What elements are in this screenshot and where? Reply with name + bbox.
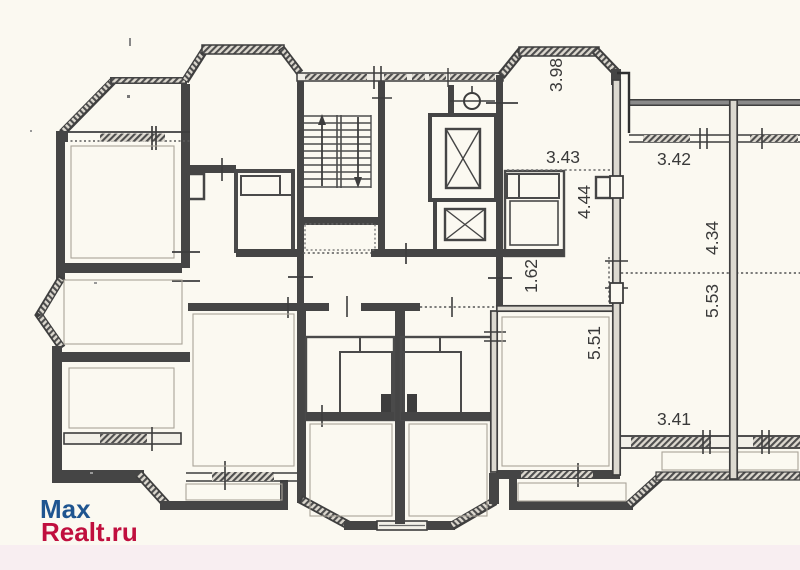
svg-text:3.98: 3.98 — [546, 58, 566, 92]
svg-text:Realt.ru: Realt.ru — [41, 517, 138, 547]
svg-text:4.44: 4.44 — [574, 185, 594, 219]
svg-text:5.51: 5.51 — [584, 326, 604, 360]
svg-text:5.53: 5.53 — [702, 284, 722, 318]
svg-text:3.41: 3.41 — [657, 409, 691, 429]
svg-text:3.42: 3.42 — [657, 149, 691, 169]
svg-text:4.34: 4.34 — [702, 221, 722, 255]
svg-text:3.43: 3.43 — [546, 147, 580, 167]
svg-text:1.62: 1.62 — [521, 259, 541, 293]
